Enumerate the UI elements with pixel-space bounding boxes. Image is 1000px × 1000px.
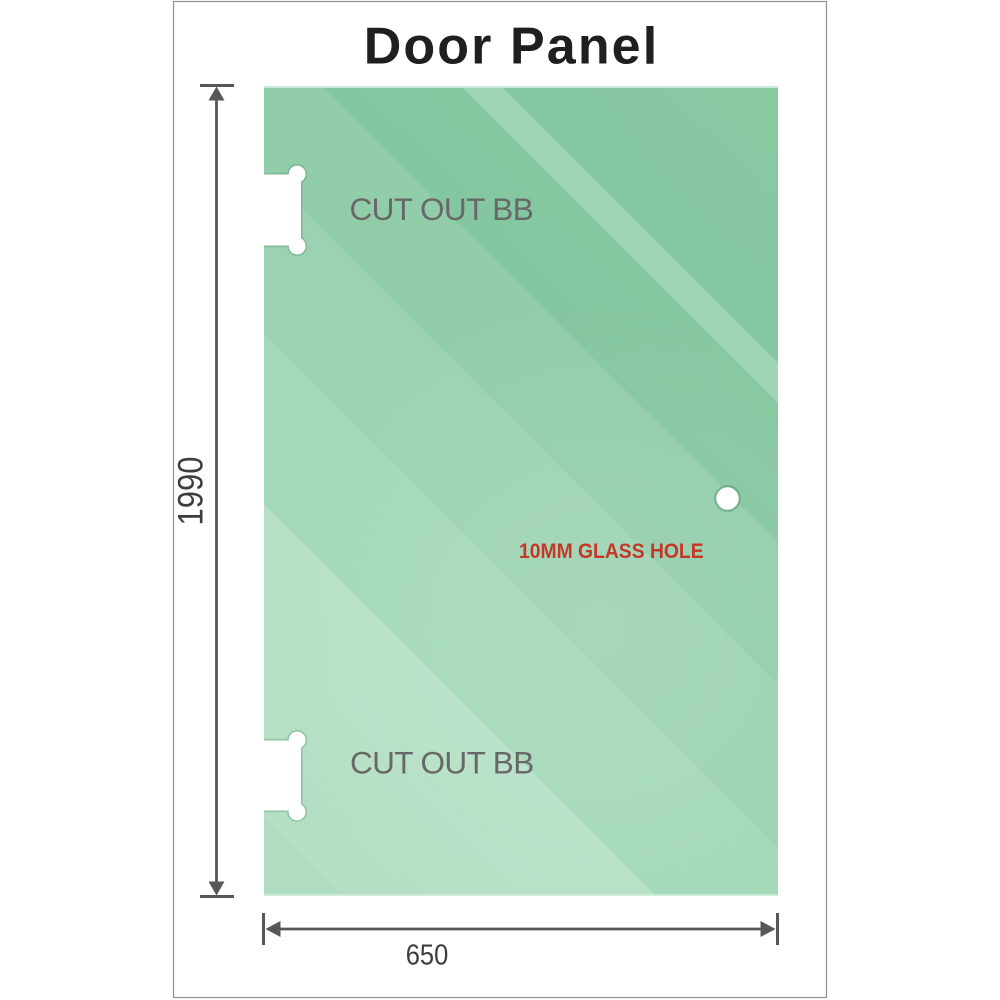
svg-text:1990: 1990	[172, 457, 211, 526]
svg-text:Door Panel: Door Panel	[364, 18, 660, 76]
svg-text:650: 650	[406, 940, 449, 972]
svg-text:10MM GLASS HOLE: 10MM GLASS HOLE	[519, 539, 704, 563]
svg-text:CUT OUT BB: CUT OUT BB	[350, 191, 534, 227]
svg-text:CUT OUT BB: CUT OUT BB	[350, 745, 534, 781]
